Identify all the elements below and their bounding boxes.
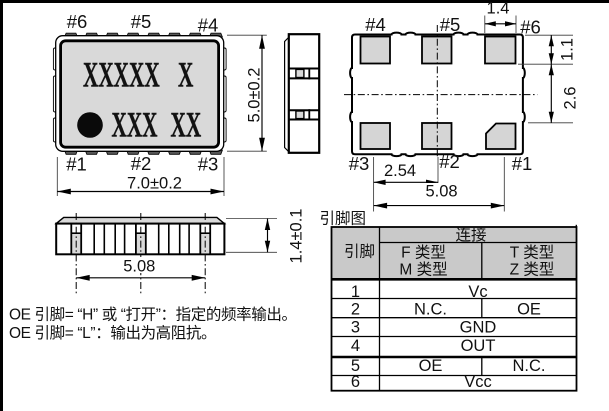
svg-text:Z 类型: Z 类型 bbox=[510, 261, 555, 279]
svg-text:XXX: XXX bbox=[112, 106, 158, 145]
svg-text:#1: #1 bbox=[66, 154, 87, 175]
svg-text:#2: #2 bbox=[439, 151, 460, 172]
svg-text:Vc: Vc bbox=[468, 283, 487, 301]
svg-text:#5: #5 bbox=[440, 14, 461, 35]
svg-text:#3: #3 bbox=[349, 153, 370, 174]
svg-text:引脚: 引脚 bbox=[344, 243, 375, 261]
svg-text:Vcc: Vcc bbox=[464, 373, 492, 391]
svg-text:5.08: 5.08 bbox=[425, 183, 457, 201]
svg-text:6: 6 bbox=[351, 373, 360, 391]
svg-text:OE: OE bbox=[517, 301, 541, 319]
svg-text:N.C.: N.C. bbox=[414, 301, 447, 319]
svg-text:连接: 连接 bbox=[455, 226, 486, 244]
svg-text:引脚图: 引脚图 bbox=[320, 210, 367, 228]
svg-text:M 类型: M 类型 bbox=[399, 261, 447, 279]
svg-text:2: 2 bbox=[351, 301, 360, 319]
svg-text:F 类型: F 类型 bbox=[401, 244, 446, 262]
svg-text:#1: #1 bbox=[512, 153, 533, 174]
svg-text:#2: #2 bbox=[131, 153, 152, 174]
svg-text:5.0±0.2: 5.0±0.2 bbox=[246, 68, 264, 123]
svg-text:OE 引脚= “H” 或 “打开”：指定的频率输出。: OE 引脚= “H” 或 “打开”：指定的频率输出。 bbox=[9, 306, 297, 324]
svg-text:XX: XX bbox=[171, 106, 202, 145]
svg-text:T 类型: T 类型 bbox=[510, 244, 555, 262]
svg-text:X: X bbox=[178, 56, 193, 95]
svg-text:1: 1 bbox=[351, 283, 360, 301]
svg-text:3: 3 bbox=[351, 319, 360, 337]
svg-text:OUT: OUT bbox=[461, 337, 496, 355]
svg-text:2.54: 2.54 bbox=[384, 162, 416, 180]
svg-text:OE 引脚= “L”：输出为高阻抗。: OE 引脚= “L”：输出为高阻抗。 bbox=[9, 324, 216, 342]
svg-text:N.C.: N.C. bbox=[513, 357, 546, 375]
svg-text:GND: GND bbox=[460, 319, 497, 337]
svg-text:2.6: 2.6 bbox=[562, 87, 580, 110]
svg-text:#4: #4 bbox=[365, 14, 386, 35]
svg-text:4: 4 bbox=[351, 337, 360, 355]
svg-text:#6: #6 bbox=[520, 17, 541, 38]
svg-text:7.0±0.2: 7.0±0.2 bbox=[127, 175, 182, 193]
svg-text:1.4±0.1: 1.4±0.1 bbox=[288, 209, 306, 264]
svg-text:XXXXX: XXXXX bbox=[83, 56, 160, 95]
svg-text:#4: #4 bbox=[198, 15, 219, 36]
svg-text:1.1: 1.1 bbox=[559, 38, 577, 61]
svg-text:5.08: 5.08 bbox=[123, 258, 155, 276]
svg-text:#6: #6 bbox=[67, 11, 88, 32]
svg-text:OE: OE bbox=[419, 357, 443, 375]
svg-text:#3: #3 bbox=[198, 154, 219, 175]
svg-text:#5: #5 bbox=[131, 11, 152, 32]
svg-text:1.4: 1.4 bbox=[487, 0, 510, 18]
